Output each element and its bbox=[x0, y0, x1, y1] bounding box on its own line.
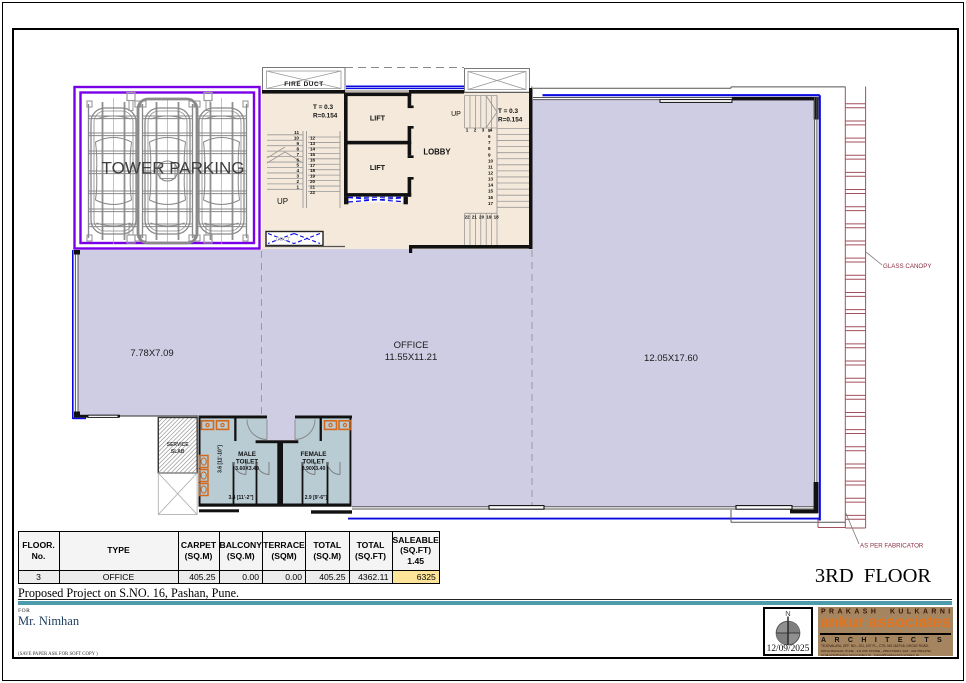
svg-text:12: 12 bbox=[488, 170, 494, 175]
svg-text:R=0.154: R=0.154 bbox=[498, 117, 523, 124]
svg-text:FEMALE: FEMALE bbox=[301, 451, 327, 458]
svg-text:SLAB: SLAB bbox=[171, 449, 185, 455]
svg-text:6: 6 bbox=[488, 134, 491, 139]
svg-text:16: 16 bbox=[310, 157, 316, 162]
svg-text:18: 18 bbox=[494, 215, 500, 220]
svg-text:21: 21 bbox=[472, 215, 478, 220]
svg-text:7.78X7.09: 7.78X7.09 bbox=[130, 348, 173, 359]
svg-text:2: 2 bbox=[296, 179, 299, 184]
svg-text:10: 10 bbox=[294, 135, 300, 140]
svg-text:9: 9 bbox=[488, 152, 491, 157]
svg-text:AS PER FABRICATOR: AS PER FABRICATOR bbox=[860, 543, 924, 550]
svg-text:8: 8 bbox=[296, 146, 299, 151]
svg-text:2.9 [9'-6"]: 2.9 [9'-6"] bbox=[305, 495, 328, 501]
svg-text:UP: UP bbox=[277, 197, 288, 206]
svg-text:10: 10 bbox=[488, 158, 494, 163]
svg-text:12: 12 bbox=[310, 136, 316, 141]
svg-text:20: 20 bbox=[310, 179, 316, 184]
svg-text:LIFT: LIFT bbox=[370, 163, 386, 172]
svg-text:11: 11 bbox=[294, 130, 299, 135]
svg-text:1: 1 bbox=[466, 128, 469, 133]
svg-text:TOILET: TOILET bbox=[302, 459, 324, 466]
svg-text:20: 20 bbox=[479, 215, 485, 220]
svg-text:OFFICE: OFFICE bbox=[394, 340, 429, 351]
svg-text:13: 13 bbox=[488, 177, 494, 182]
svg-text:14: 14 bbox=[488, 183, 494, 188]
svg-text:8: 8 bbox=[488, 146, 491, 151]
svg-text:17: 17 bbox=[488, 201, 494, 206]
svg-text:7: 7 bbox=[488, 140, 491, 145]
svg-text:7: 7 bbox=[296, 152, 299, 157]
svg-text:UP: UP bbox=[451, 111, 461, 118]
svg-text:R=0.154: R=0.154 bbox=[313, 113, 338, 120]
svg-text:GLASS CANOPY: GLASS CANOPY bbox=[883, 263, 932, 270]
svg-text:17: 17 bbox=[310, 163, 316, 168]
svg-text:2: 2 bbox=[474, 128, 477, 133]
svg-text:11.55X11.21: 11.55X11.21 bbox=[385, 352, 437, 363]
svg-text:DUCT: DUCT bbox=[276, 237, 290, 243]
svg-text:SERVICE: SERVICE bbox=[167, 442, 190, 448]
svg-text:13: 13 bbox=[310, 141, 316, 146]
svg-text:3.4 [11'-2"]: 3.4 [11'-2"] bbox=[229, 495, 254, 501]
svg-text:12.05X17.60: 12.05X17.60 bbox=[644, 353, 698, 364]
svg-text:MALE: MALE bbox=[238, 451, 256, 458]
svg-text:21: 21 bbox=[310, 185, 316, 190]
svg-text:19: 19 bbox=[310, 174, 316, 179]
svg-text:LIFT: LIFT bbox=[370, 114, 386, 123]
svg-text:3: 3 bbox=[482, 128, 485, 133]
svg-text:2.90X3.40: 2.90X3.40 bbox=[302, 466, 326, 472]
svg-text:18: 18 bbox=[310, 168, 316, 173]
svg-text:22: 22 bbox=[310, 190, 316, 195]
svg-text:3: 3 bbox=[296, 174, 299, 179]
svg-text:3.6 [11'-10"]: 3.6 [11'-10"] bbox=[218, 445, 224, 473]
svg-text:6: 6 bbox=[296, 157, 299, 162]
svg-text:LOBBY: LOBBY bbox=[423, 148, 451, 157]
svg-text:15: 15 bbox=[488, 189, 494, 194]
svg-text:1: 1 bbox=[296, 185, 299, 190]
svg-text:19: 19 bbox=[486, 215, 492, 220]
svg-text:9: 9 bbox=[296, 141, 299, 146]
svg-text:5: 5 bbox=[488, 128, 491, 133]
svg-text:15: 15 bbox=[310, 152, 316, 157]
svg-text:4: 4 bbox=[296, 168, 299, 173]
svg-text:T = 0.3: T = 0.3 bbox=[498, 108, 519, 115]
svg-text:16: 16 bbox=[488, 195, 494, 200]
svg-text:TOWER PARKING: TOWER PARKING bbox=[102, 159, 245, 178]
svg-text:14: 14 bbox=[310, 146, 316, 151]
svg-text:TOILET: TOILET bbox=[236, 459, 258, 466]
svg-text:T = 0.3: T = 0.3 bbox=[313, 104, 334, 111]
svg-text:FIRE DUCT: FIRE DUCT bbox=[284, 81, 323, 88]
svg-text:22: 22 bbox=[464, 215, 470, 220]
svg-text:11: 11 bbox=[488, 164, 493, 169]
svg-text:5: 5 bbox=[296, 163, 299, 168]
svg-text:3.60X3.40: 3.60X3.40 bbox=[235, 466, 259, 472]
